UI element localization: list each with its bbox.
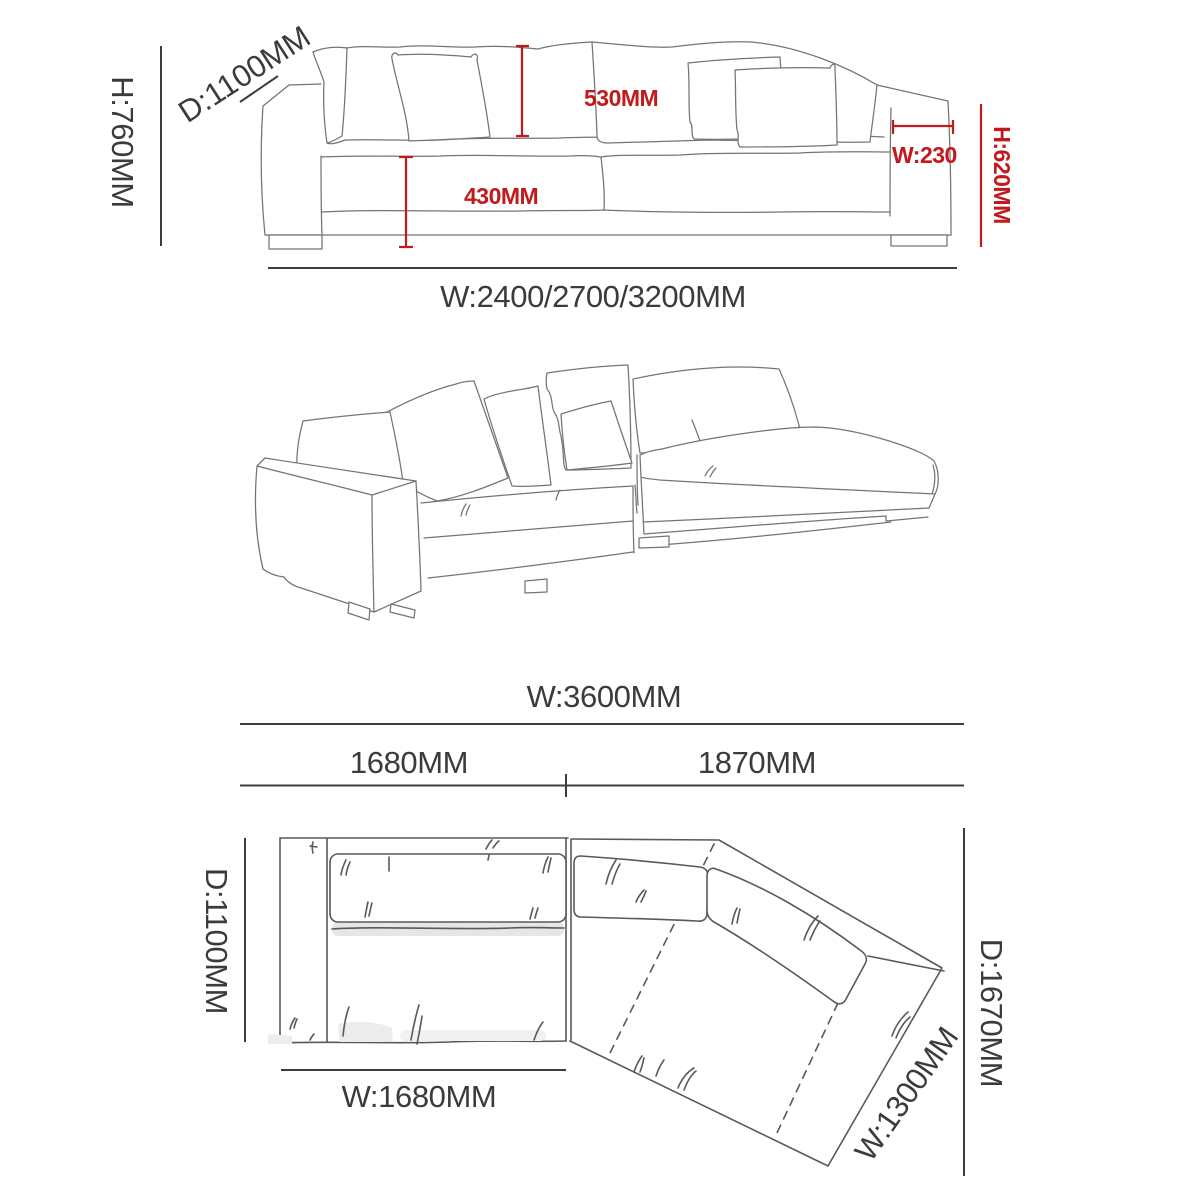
svg-text:530MM: 530MM — [584, 85, 658, 111]
svg-text:D:1100MM: D:1100MM — [199, 868, 234, 1014]
svg-text:W:3600MM: W:3600MM — [527, 679, 682, 714]
svg-text:430MM: 430MM — [464, 183, 538, 209]
svg-text:W:2400/2700/3200MM: W:2400/2700/3200MM — [440, 279, 746, 314]
svg-text:1680MM: 1680MM — [350, 745, 468, 780]
svg-text:W:1680MM: W:1680MM — [342, 1079, 497, 1114]
svg-text:H:620MM: H:620MM — [989, 126, 1015, 223]
svg-text:W:230: W:230 — [892, 142, 957, 168]
svg-text:D:1670MM: D:1670MM — [974, 939, 1009, 1087]
svg-text:H:760MM: H:760MM — [105, 76, 140, 208]
svg-text:1870MM: 1870MM — [698, 745, 816, 780]
